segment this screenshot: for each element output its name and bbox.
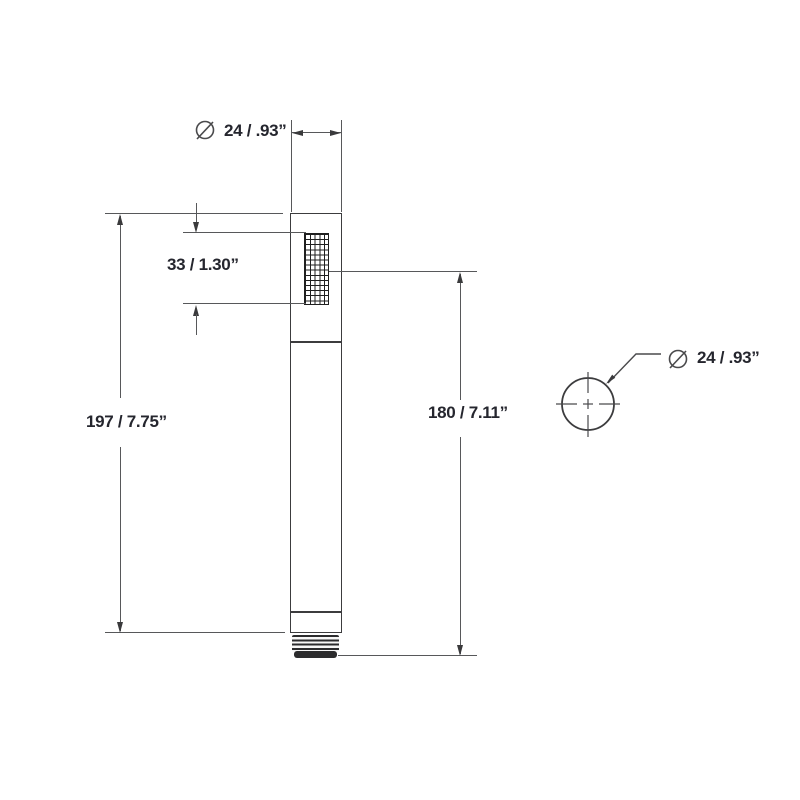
spray-ext-line-top <box>183 232 306 233</box>
overall-length-label: 197 / 7.75” <box>86 412 167 432</box>
dia-ext-line-right <box>341 120 342 212</box>
outlet-dim-line-upper <box>460 274 461 400</box>
top-diameter-label: 24 / .93” <box>224 121 287 141</box>
outlet-arrow-up-icon <box>457 272 463 283</box>
dia-arrow-left-icon <box>292 130 303 136</box>
head-handle-seam-line <box>290 341 342 343</box>
outlet-thread-end <box>294 651 337 658</box>
top-view-diameter-label: 24 / .93” <box>697 348 760 368</box>
overall-dim-line-lower <box>120 447 121 631</box>
diameter-symbol-icon <box>193 118 217 142</box>
spray-arrow-down-icon <box>193 222 199 233</box>
outlet-dim-line-lower <box>460 437 461 654</box>
outlet-ext-line-top <box>329 271 477 272</box>
spray-center-to-outlet-label: 180 / 7.11” <box>428 403 508 423</box>
overall-dim-line-upper <box>120 216 121 398</box>
technical-drawing-canvas: 24 / .93” 197 / 7.75” 33 / 1.30” 180 / 7… <box>0 0 800 800</box>
spray-face-height-label: 33 / 1.30” <box>167 255 239 275</box>
outlet-thread <box>292 635 339 652</box>
centerline-cross-icon <box>556 372 620 437</box>
lower-seam-line <box>290 611 342 613</box>
leader-line <box>606 354 661 384</box>
spray-face-grid <box>304 233 329 305</box>
dia-arrow-right-icon <box>330 130 341 136</box>
spray-arrow-shaft-bottom <box>196 314 197 335</box>
diameter-symbol-icon-2 <box>666 347 690 371</box>
overall-arrow-down-icon <box>117 622 123 633</box>
overall-ext-line-bottom <box>105 632 285 633</box>
outlet-arrow-down-icon <box>457 645 463 656</box>
spray-ext-line-bottom <box>183 303 306 304</box>
overall-arrow-up-icon <box>117 214 123 225</box>
overall-ext-line-top <box>105 213 283 214</box>
